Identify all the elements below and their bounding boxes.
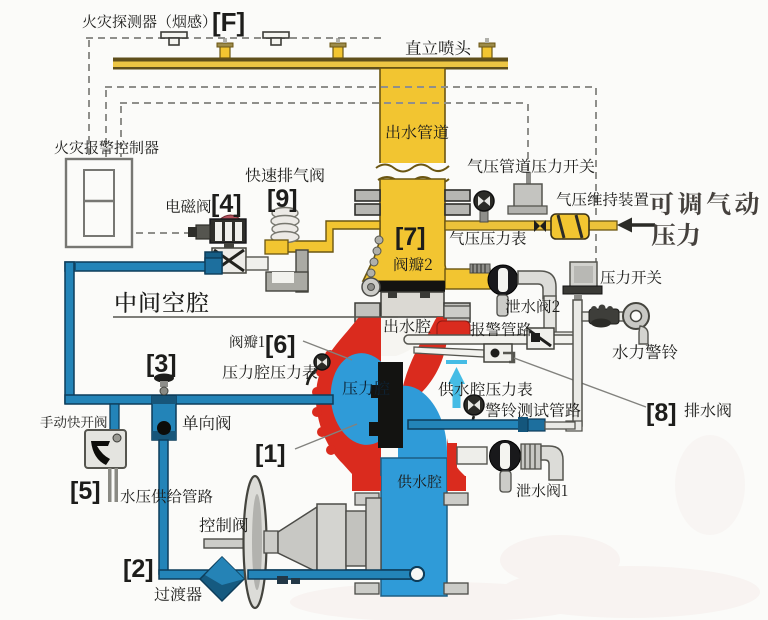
svg-text:[F]: [F]: [212, 7, 245, 37]
svg-text:[6]: [6]: [265, 331, 296, 359]
svg-text:[3]: [3]: [146, 350, 177, 378]
svg-text:[5]: [5]: [70, 477, 101, 505]
svg-text:[4]: [4]: [211, 190, 242, 218]
svg-text:[1]: [1]: [255, 440, 286, 468]
svg-text:[2]: [2]: [123, 555, 154, 583]
svg-text:[8]: [8]: [646, 399, 677, 427]
svg-text:[9]: [9]: [267, 185, 298, 213]
svg-text:[7]: [7]: [395, 223, 426, 251]
